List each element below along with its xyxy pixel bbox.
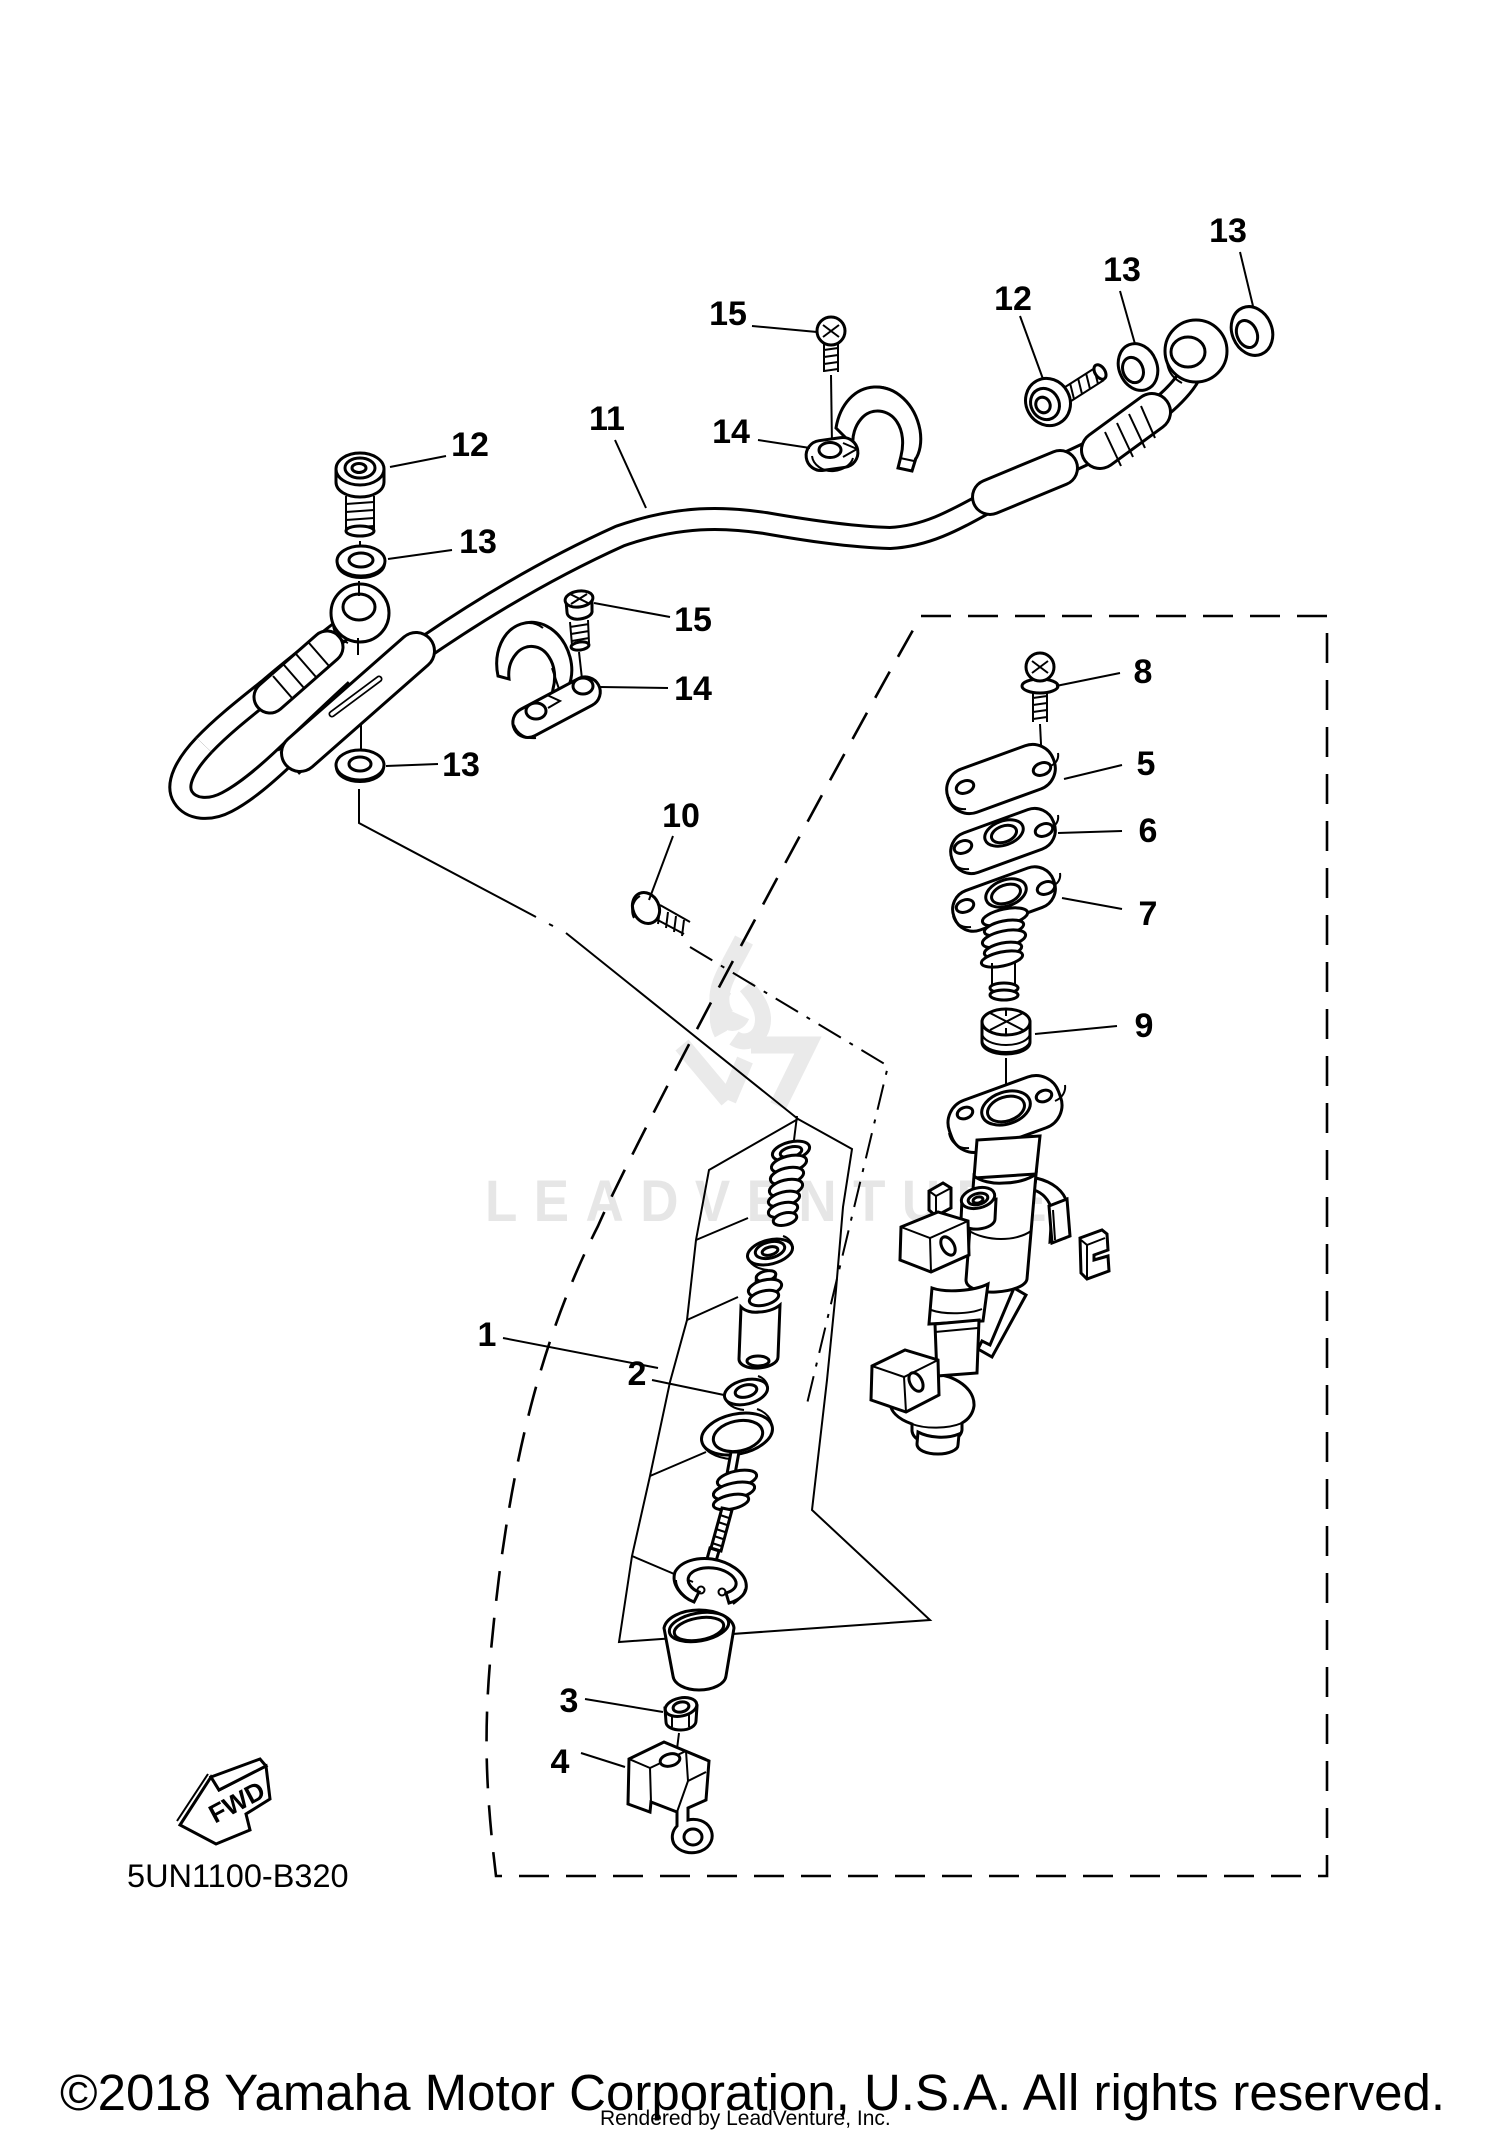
- svg-text:1: 1: [478, 1316, 497, 1354]
- svg-text:9: 9: [1135, 1007, 1154, 1045]
- svg-text:4: 4: [551, 1743, 570, 1781]
- svg-text:5: 5: [1137, 745, 1156, 783]
- svg-text:12: 12: [994, 280, 1032, 318]
- svg-text:7: 7: [1139, 895, 1158, 933]
- svg-text:13: 13: [442, 746, 480, 784]
- svg-text:13: 13: [1103, 251, 1141, 289]
- svg-text:3: 3: [560, 1682, 579, 1720]
- svg-text:10: 10: [662, 797, 700, 835]
- svg-text:Rendered by LeadVenture, Inc.: Rendered by LeadVenture, Inc.: [600, 2107, 891, 2130]
- svg-text:14: 14: [674, 670, 712, 708]
- svg-text:12: 12: [451, 426, 489, 464]
- svg-text:14: 14: [712, 413, 750, 451]
- svg-text:5UN1100-B320: 5UN1100-B320: [127, 1858, 349, 1894]
- svg-text:13: 13: [459, 523, 497, 561]
- svg-text:2: 2: [628, 1355, 647, 1393]
- svg-text:15: 15: [674, 601, 712, 639]
- svg-text:6: 6: [1139, 812, 1158, 850]
- svg-text:15: 15: [709, 295, 747, 333]
- svg-text:11: 11: [589, 400, 625, 438]
- svg-text:8: 8: [1134, 653, 1153, 691]
- svg-text:13: 13: [1209, 212, 1247, 250]
